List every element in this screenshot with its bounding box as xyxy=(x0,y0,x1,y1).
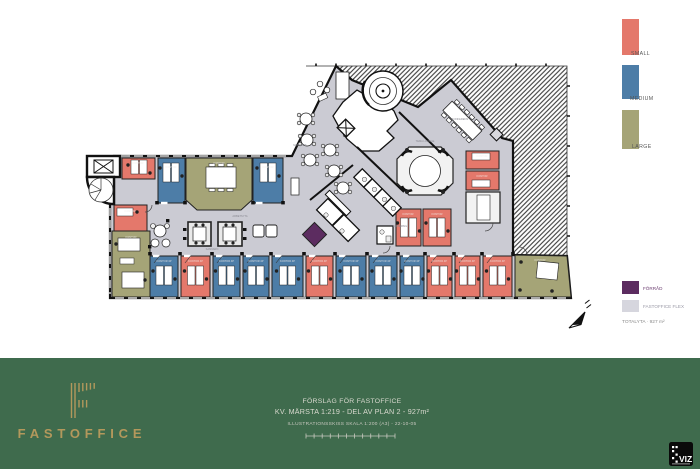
svg-text:ILLUSTRATIONSSKISS SKALA 1:200: ILLUSTRATIONSSKISS SKALA 1:200 (A3) - 22… xyxy=(288,421,417,427)
svg-text:KONTOR: KONTOR xyxy=(402,212,413,216)
svg-text:KONTOR: KONTOR xyxy=(132,161,143,165)
svg-text:KONTOR 4P: KONTOR 4P xyxy=(219,259,234,263)
svg-text:KONTOR: KONTOR xyxy=(125,235,136,239)
svg-text:MATPLATS: MATPLATS xyxy=(293,143,307,147)
svg-text:KONTOR 4P: KONTOR 4P xyxy=(432,259,447,263)
svg-text:KONTOR 4P: KONTOR 4P xyxy=(460,259,475,263)
svg-text:KONFERENS: KONFERENS xyxy=(452,117,468,121)
svg-text:SMALL: SMALL xyxy=(631,51,650,57)
svg-text:KONTOR: KONTOR xyxy=(124,209,135,213)
svg-text:KONTOR: KONTOR xyxy=(476,154,487,158)
svg-text:KONTOR: KONTOR xyxy=(476,174,487,178)
svg-text:MEDIUM: MEDIUM xyxy=(630,96,653,102)
svg-text:FASTOFFICE FLEX: FASTOFFICE FLEX xyxy=(643,304,684,309)
svg-text:KONTOR 4P: KONTOR 4P xyxy=(376,259,391,263)
svg-text:VIZ: VIZ xyxy=(679,454,692,464)
svg-text:ARBETSYTA: ARBETSYTA xyxy=(232,214,247,218)
svg-text:FASTOFFICE: FASTOFFICE xyxy=(18,426,147,441)
svg-text:FÖRRÅD: FÖRRÅD xyxy=(643,285,663,291)
svg-text:KONTOR 4P: KONTOR 4P xyxy=(157,259,172,263)
svg-text:KV. MÄRSTA 1:219 - DEL AV PLAN: KV. MÄRSTA 1:219 - DEL AV PLAN 2 - 927m² xyxy=(275,407,430,416)
svg-text:KONTOR 4P: KONTOR 4P xyxy=(249,259,264,263)
svg-text:KONTOR 4P: KONTOR 4P xyxy=(188,259,203,263)
svg-text:KONTOR 4P: KONTOR 4P xyxy=(344,259,359,263)
svg-text:LARGE: LARGE xyxy=(632,144,652,150)
svg-text:KONTOR 4P: KONTOR 4P xyxy=(280,259,295,263)
svg-text:KONTOR: KONTOR xyxy=(534,258,545,262)
svg-text:KONTOR 4P: KONTOR 4P xyxy=(490,259,505,263)
svg-text:FÖRSLAG FÖR FASTOFFICE: FÖRSLAG FÖR FASTOFFICE xyxy=(303,397,402,405)
svg-text:TEMA LOUNGE: TEMA LOUNGE xyxy=(416,139,435,143)
svg-text:KONTOR: KONTOR xyxy=(431,212,442,216)
svg-text:KONTOR: KONTOR xyxy=(262,165,273,169)
svg-text:KONTOR 4P: KONTOR 4P xyxy=(405,259,420,263)
svg-text:KONTOR: KONTOR xyxy=(165,165,176,169)
svg-text:KONTOR: KONTOR xyxy=(213,161,224,165)
svg-text:SAMVARO: SAMVARO xyxy=(206,247,219,251)
svg-text:TOTALYTA · 927 m²: TOTALYTA · 927 m² xyxy=(622,319,665,325)
svg-text:KOPIERING: KOPIERING xyxy=(393,224,407,228)
svg-text:KONTOR 4P: KONTOR 4P xyxy=(312,259,327,263)
